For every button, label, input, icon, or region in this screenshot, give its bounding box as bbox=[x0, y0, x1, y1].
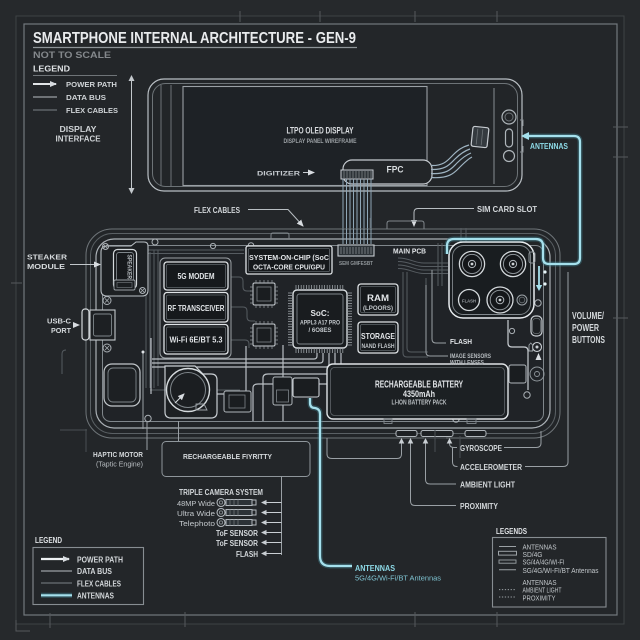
svg-text:APPL3 A17 PRO: APPL3 A17 PRO bbox=[300, 320, 340, 327]
svg-text:GYROSCOPE: GYROSCOPE bbox=[460, 444, 503, 453]
svg-text:LEGEND: LEGEND bbox=[33, 64, 70, 74]
svg-text:PORT: PORT bbox=[51, 326, 71, 335]
svg-text:NOT TO SCALE: NOT TO SCALE bbox=[33, 50, 111, 61]
svg-text:DISPLAY PANEL WIREFRAME: DISPLAY PANEL WIREFRAME bbox=[284, 138, 358, 145]
svg-text:BUTTONS: BUTTONS bbox=[572, 334, 605, 346]
svg-text:ANTENNAS: ANTENNAS bbox=[523, 580, 557, 587]
svg-text:PROXIMITY: PROXIMITY bbox=[460, 502, 499, 511]
svg-text:MODULE: MODULE bbox=[27, 262, 65, 271]
svg-text:ACCELEROMETER: ACCELEROMETER bbox=[460, 463, 522, 472]
svg-text:/ 6O8ES: / 6O8ES bbox=[309, 327, 332, 334]
svg-text:SD/4G: SD/4G bbox=[523, 552, 543, 559]
svg-text:MAIN PCB: MAIN PCB bbox=[393, 247, 427, 256]
svg-text:SG/4G/WI-FI/BT Antennas: SG/4G/WI-FI/BT Antennas bbox=[523, 568, 599, 575]
svg-text:FLEX CABLES: FLEX CABLES bbox=[194, 206, 241, 215]
svg-text:WITH LENSES: WITH LENSES bbox=[450, 360, 484, 367]
svg-text:FLASH: FLASH bbox=[236, 550, 258, 559]
svg-text:SPEAKERS: SPEAKERS bbox=[126, 255, 133, 283]
svg-text:ANTENNAS: ANTENNAS bbox=[77, 592, 115, 601]
svg-text:4350mAh: 4350mAh bbox=[403, 389, 435, 399]
svg-text:LI-ION BATTERY PACK: LI-ION BATTERY PACK bbox=[392, 400, 447, 407]
svg-text:(LPOORS): (LPOORS) bbox=[363, 305, 393, 312]
svg-text:DISPLAY: DISPLAY bbox=[60, 125, 98, 134]
svg-text:Ultra Wide: Ultra Wide bbox=[177, 509, 215, 518]
svg-text:SG/4A/4G/WI-FI: SG/4A/4G/WI-FI bbox=[523, 560, 565, 567]
svg-text:5G MODEM: 5G MODEM bbox=[178, 272, 215, 281]
svg-text:ToF SENSOR: ToF SENSOR bbox=[216, 539, 258, 548]
svg-text:USB-C: USB-C bbox=[47, 317, 72, 326]
svg-text:ANTENNAS: ANTENNAS bbox=[355, 563, 395, 573]
svg-text:ToF SENSOR: ToF SENSOR bbox=[216, 529, 258, 538]
svg-text:RECHARGEABLE FIYRITTY: RECHARGEABLE FIYRITTY bbox=[183, 452, 272, 461]
svg-text:OCTA-CORE CPU/GPU: OCTA-CORE CPU/GPU bbox=[253, 263, 325, 272]
svg-text:NAND FLASH: NAND FLASH bbox=[362, 343, 395, 350]
svg-text:48MP Wide: 48MP Wide bbox=[177, 499, 215, 508]
svg-text:TRIPLE CAMERA SYSTEM: TRIPLE CAMERA SYSTEM bbox=[179, 488, 263, 497]
svg-text:Telephoto: Telephoto bbox=[179, 519, 215, 528]
svg-text:STEAKER: STEAKER bbox=[27, 253, 68, 262]
svg-text:FLASH: FLASH bbox=[450, 337, 472, 346]
svg-text:RF TRANSCEIVER: RF TRANSCEIVER bbox=[168, 304, 225, 313]
svg-text:FLEX CABLES: FLEX CABLES bbox=[66, 106, 118, 115]
svg-text:STORAGE: STORAGE bbox=[361, 331, 395, 341]
svg-text:LEGENDS: LEGENDS bbox=[496, 526, 527, 536]
svg-text:Wi-Fi 6E/BT 5.3: Wi-Fi 6E/BT 5.3 bbox=[170, 336, 224, 345]
svg-text:SEM GMFESBT: SEM GMFESBT bbox=[339, 261, 374, 267]
svg-text:POWER PATH: POWER PATH bbox=[77, 556, 123, 565]
svg-text:ANTENNAS: ANTENNAS bbox=[530, 141, 568, 151]
svg-text:ANTENNAS: ANTENNAS bbox=[523, 545, 557, 552]
svg-text:5G/4G/Wi-Fi/BT Antennas: 5G/4G/Wi-Fi/BT Antennas bbox=[355, 576, 442, 583]
svg-text:AMBIENT LIGHT: AMBIENT LIGHT bbox=[460, 481, 515, 490]
svg-text:INTERFACE: INTERFACE bbox=[56, 135, 102, 144]
svg-text:DATA BUS: DATA BUS bbox=[77, 567, 113, 576]
svg-text:DIGITIZER: DIGITIZER bbox=[257, 171, 300, 178]
svg-text:POWER PATH: POWER PATH bbox=[66, 80, 117, 89]
svg-text:VOLUME/: VOLUME/ bbox=[572, 310, 604, 322]
svg-text:POWER: POWER bbox=[572, 322, 599, 334]
svg-text:LTPO OLED DISPLAY: LTPO OLED DISPLAY bbox=[287, 126, 354, 137]
svg-text:DATA BUS: DATA BUS bbox=[66, 93, 106, 102]
svg-text:FLASH: FLASH bbox=[462, 299, 476, 304]
svg-text:LEGEND: LEGEND bbox=[35, 535, 62, 545]
svg-text:FLEX CABLES: FLEX CABLES bbox=[77, 580, 122, 589]
svg-text:SoC:: SoC: bbox=[311, 308, 330, 318]
svg-text:(Taptic Engine): (Taptic Engine) bbox=[96, 460, 143, 469]
svg-text:SIM CARD SLOT: SIM CARD SLOT bbox=[477, 205, 537, 214]
svg-text:SYSTEM-ON-CHIP (SoC: SYSTEM-ON-CHIP (SoC bbox=[249, 253, 330, 262]
svg-text:AMBIENT LIGHT: AMBIENT LIGHT bbox=[523, 588, 563, 595]
svg-text:FPC: FPC bbox=[387, 165, 404, 175]
svg-text:SMARTPHONE INTERNAL ARCHITECTU: SMARTPHONE INTERNAL ARCHITECTURE - GEN-9 bbox=[33, 30, 356, 47]
svg-text:HAPTIC MOTOR: HAPTIC MOTOR bbox=[93, 450, 144, 459]
svg-text:PROXIMITY: PROXIMITY bbox=[523, 596, 556, 603]
svg-text:RAM: RAM bbox=[367, 293, 389, 303]
